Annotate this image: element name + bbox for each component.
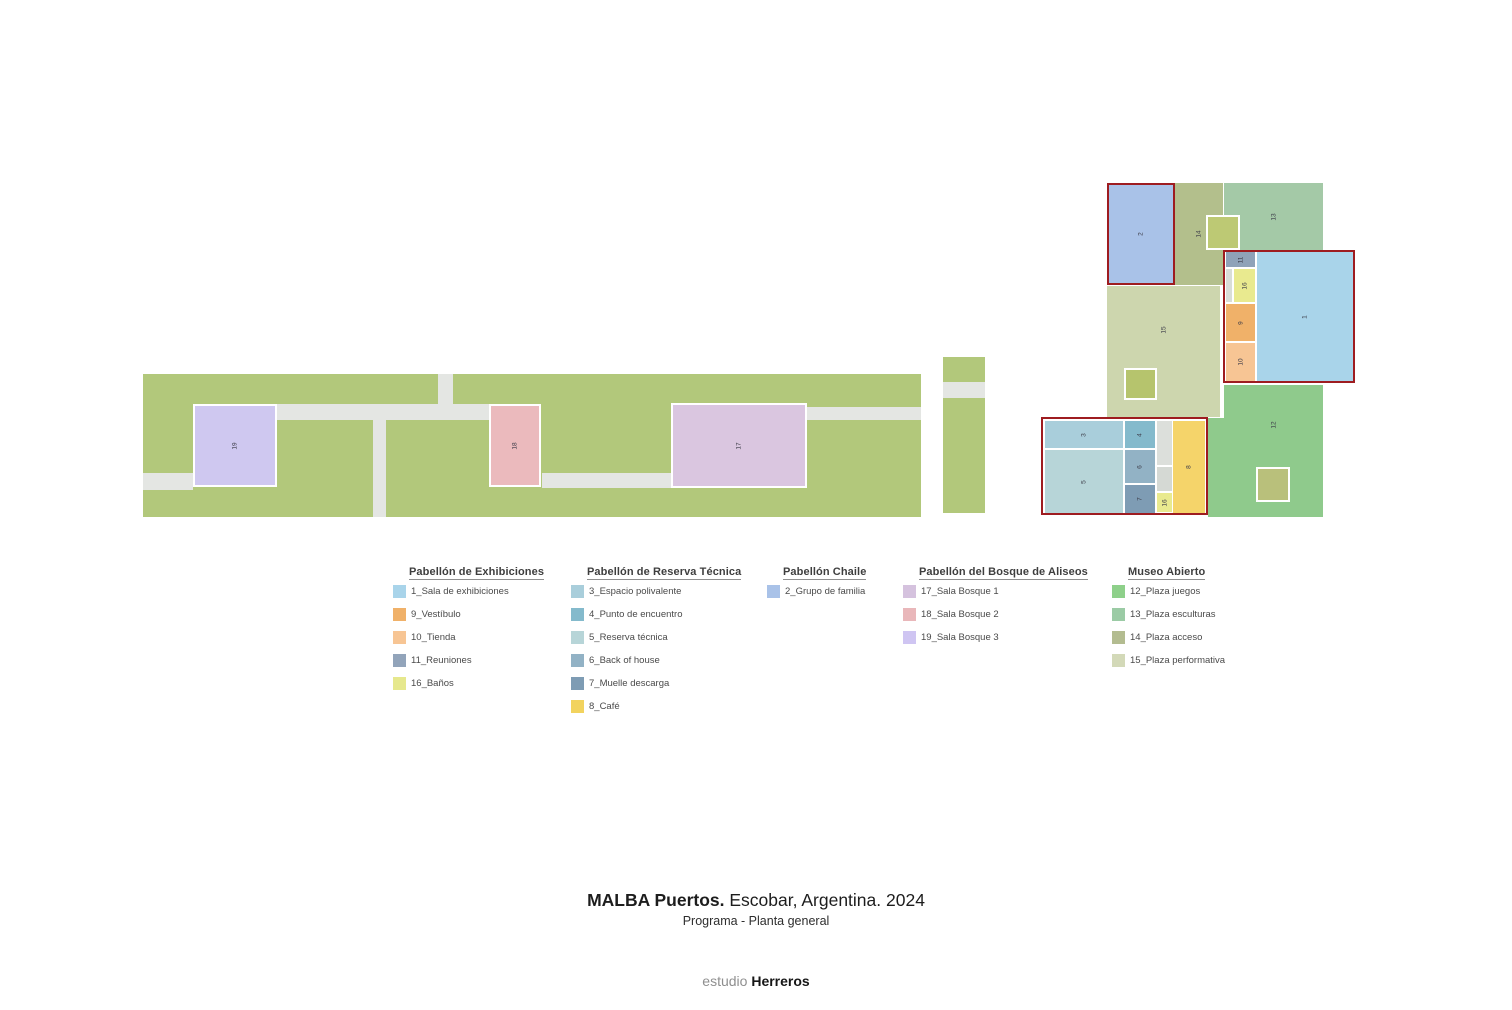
block-grupo-de-familia-label: 2 (1138, 232, 1145, 236)
legend-label: 3_Espacio polivalente (589, 585, 681, 598)
square-plaza-juegos (1256, 467, 1290, 502)
legend-title: Museo Abierto (1128, 566, 1205, 580)
legend-item: 8_Café (571, 700, 741, 723)
legend-title: Pabellón de Exhibiciones (409, 566, 544, 580)
legend-swatch (903, 608, 916, 621)
legend-label: 6_Back of house (589, 654, 660, 667)
legend-label: 12_Plaza juegos (1130, 585, 1200, 598)
legend-swatch (903, 585, 916, 598)
legend-label: 17_Sala Bosque 1 (921, 585, 999, 598)
path-horizontal-2 (807, 407, 921, 420)
redbox-pabellon-exhibiciones (1223, 250, 1355, 383)
square-plaza-performativa (1124, 368, 1157, 400)
legend-label: 14_Plaza acceso (1130, 631, 1202, 644)
legend-item: 9_Vestíbulo (393, 608, 544, 631)
legend-item: 14_Plaza acceso (1112, 631, 1225, 654)
legend-swatch (393, 677, 406, 690)
legend-item: 15_Plaza performativa (1112, 654, 1225, 677)
block-sala-bosque-1-label: 17 (736, 442, 743, 449)
block-plaza-esculturas-label: 13 (1270, 213, 1277, 220)
block-plaza-juegos-ext (1208, 418, 1224, 517)
legend-swatch (571, 608, 584, 621)
legend-item: 13_Plaza esculturas (1112, 608, 1225, 631)
legend-list: 2_Grupo de familia (767, 585, 866, 608)
legend-label: 4_Punto de encuentro (589, 608, 683, 621)
legend-item: 3_Espacio polivalente (571, 585, 741, 608)
legend-item: 2_Grupo de familia (767, 585, 866, 608)
legend-label: 2_Grupo de familia (785, 585, 865, 598)
legend-swatch (571, 654, 584, 667)
legend-column-2: Pabellón Chaile2_Grupo de familia (767, 562, 866, 608)
studio-credit: estudio Herreros (0, 973, 1512, 989)
legend-list: 1_Sala de exhibiciones9_Vestíbulo10_Tien… (393, 585, 544, 700)
page-title-bold: MALBA Puertos. (587, 890, 724, 910)
legend-label: 10_Tienda (411, 631, 456, 644)
poster-canvas: 1918171413151221116910134567168 Pabellón… (0, 0, 1512, 1010)
legend-label: 16_Baños (411, 677, 454, 690)
legend-swatch (767, 585, 780, 598)
legend-item: 16_Baños (393, 677, 544, 700)
path-vertical-2 (438, 374, 453, 420)
page-title: MALBA Puertos. Escobar, Argentina. 2024 (0, 890, 1512, 911)
legend-swatch (1112, 608, 1125, 621)
legend-swatch (1112, 585, 1125, 598)
path-horizontal-3 (542, 473, 671, 488)
legend-item: 10_Tienda (393, 631, 544, 654)
path-vertical-1 (373, 420, 386, 517)
block-plaza-juegos-label: 12 (1270, 421, 1277, 428)
legend-item: 5_Reserva técnica (571, 631, 741, 654)
legend-item: 1_Sala de exhibiciones (393, 585, 544, 608)
legend-title: Pabellón Chaile (783, 566, 866, 580)
legend-swatch (393, 631, 406, 644)
legend-label: 19_Sala Bosque 3 (921, 631, 999, 644)
legend-title: Pabellón de Reserva Técnica (587, 566, 741, 580)
legend-item: 17_Sala Bosque 1 (903, 585, 1088, 608)
legend-label: 9_Vestíbulo (411, 608, 461, 621)
legend-item: 18_Sala Bosque 2 (903, 608, 1088, 631)
legend-item: 19_Sala Bosque 3 (903, 631, 1088, 654)
legend-item: 11_Reuniones (393, 654, 544, 677)
legend-swatch (571, 585, 584, 598)
block-sala-bosque-2: 18 (489, 404, 541, 487)
legend-swatch (903, 631, 916, 644)
legend-swatch (571, 700, 584, 713)
legend-swatch (393, 608, 406, 621)
block-sala-bosque-2-label: 18 (512, 442, 519, 449)
legend-list: 12_Plaza juegos13_Plaza esculturas14_Pla… (1112, 585, 1225, 677)
park-strip-tall (943, 398, 985, 513)
legend-label: 7_Muelle descarga (589, 677, 669, 690)
legend-column-0: Pabellón de Exhibiciones1_Sala de exhibi… (393, 562, 544, 700)
legend-label: 13_Plaza esculturas (1130, 608, 1216, 621)
legend-item: 7_Muelle descarga (571, 677, 741, 700)
legend-item: 12_Plaza juegos (1112, 585, 1225, 608)
legend-list: 3_Espacio polivalente4_Punto de encuentr… (571, 585, 741, 723)
square-plaza-acceso (1206, 215, 1240, 250)
block-sala-bosque-1: 17 (671, 403, 807, 488)
legend-column-3: Pabellón del Bosque de Aliseos17_Sala Bo… (903, 562, 1088, 654)
legend-item: 6_Back of house (571, 654, 741, 677)
legend-column-4: Museo Abierto12_Plaza juegos13_Plaza esc… (1112, 562, 1225, 677)
park-strip-gap (943, 382, 985, 398)
path-stub-left (143, 473, 193, 490)
path-horizontal-1 (277, 404, 490, 420)
legend-label: 1_Sala de exhibiciones (411, 585, 509, 598)
legend-label: 8_Café (589, 700, 620, 713)
block-sala-bosque-3-label: 19 (232, 442, 239, 449)
block-grupo-de-familia: 2 (1107, 183, 1175, 285)
legend-swatch (393, 654, 406, 667)
block-plaza-performativa-label: 15 (1160, 326, 1167, 333)
legend-swatch (571, 631, 584, 644)
legend-swatch (1112, 631, 1125, 644)
legend-title: Pabellón del Bosque de Aliseos (919, 566, 1088, 580)
legend-item: 4_Punto de encuentro (571, 608, 741, 631)
studio-credit-light: estudio (702, 973, 747, 989)
legend-swatch (1112, 654, 1125, 667)
legend-list: 17_Sala Bosque 118_Sala Bosque 219_Sala … (903, 585, 1088, 654)
legend-swatch (571, 677, 584, 690)
block-sala-bosque-3: 19 (193, 404, 277, 487)
legend-label: 11_Reuniones (411, 654, 472, 667)
studio-credit-bold: Herreros (751, 973, 809, 989)
page-subtitle: Programa - Planta general (0, 914, 1512, 928)
redbox-pabellon-reserva (1041, 417, 1208, 515)
legend-label: 15_Plaza performativa (1130, 654, 1225, 667)
park-strip-top (943, 357, 985, 382)
legend-swatch (393, 585, 406, 598)
block-plaza-acceso-label: 14 (1195, 230, 1202, 237)
legend-label: 18_Sala Bosque 2 (921, 608, 999, 621)
legend-column-1: Pabellón de Reserva Técnica3_Espacio pol… (571, 562, 741, 723)
page-title-rest: Escobar, Argentina. 2024 (725, 890, 925, 910)
legend-label: 5_Reserva técnica (589, 631, 668, 644)
